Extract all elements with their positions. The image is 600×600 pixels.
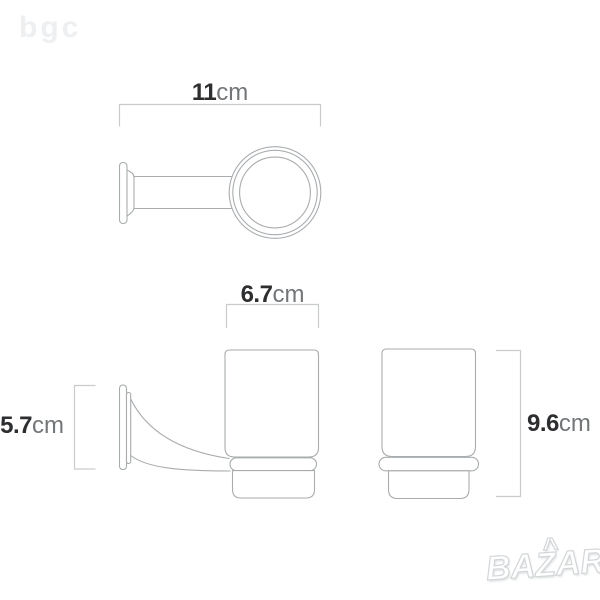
product-dimension-diagram: bgc xyxy=(0,0,600,600)
cup-in-holder xyxy=(225,350,319,498)
cup-side-view-drawing xyxy=(379,349,479,499)
wall-plate-side-view xyxy=(120,385,131,470)
top-view-holder-drawing xyxy=(120,147,321,239)
cup-body xyxy=(225,350,319,457)
dimension-bracket-cup-width xyxy=(227,305,319,329)
dimension-value: 5.7 xyxy=(0,412,32,439)
ring-outer-circle xyxy=(229,147,321,239)
cup-band xyxy=(379,457,479,471)
dimension-bracket-cup-height xyxy=(496,351,521,497)
wall-plate-top-view xyxy=(120,163,135,224)
dimension-label-cup-height: 9.6cm xyxy=(527,412,591,436)
dimension-unit: cm xyxy=(559,410,591,437)
dimension-label-wall-plate-height: 5.7cm xyxy=(0,414,64,438)
holder-ring xyxy=(229,147,321,239)
dimension-bracket-wall-plate-height xyxy=(75,386,96,470)
dimension-value: 9.6 xyxy=(527,410,559,437)
mounting-arm-top-view xyxy=(134,177,233,209)
cup-body xyxy=(382,349,476,457)
side-view-holder-with-cup-drawing xyxy=(120,350,319,498)
dimension-label-holder-depth: 11cm xyxy=(120,81,320,105)
dimension-unit: cm xyxy=(272,281,304,308)
dimension-unit: cm xyxy=(216,79,248,106)
dimension-unit: cm xyxy=(32,412,64,439)
dimension-bracket-holder-depth xyxy=(120,105,321,127)
cup-base xyxy=(233,471,315,498)
cup-band xyxy=(230,458,317,471)
bazar-watermark-roof-accent: ^ xyxy=(542,532,560,564)
cup-base xyxy=(389,471,470,499)
dimension-label-cup-width: 6.7cm xyxy=(226,283,319,307)
dimension-value: 11 xyxy=(192,79,216,106)
mounting-arm-side-view xyxy=(131,399,230,471)
bazar-watermark: BAZAR ^ xyxy=(485,542,600,589)
dimension-value: 6.7 xyxy=(241,281,273,308)
